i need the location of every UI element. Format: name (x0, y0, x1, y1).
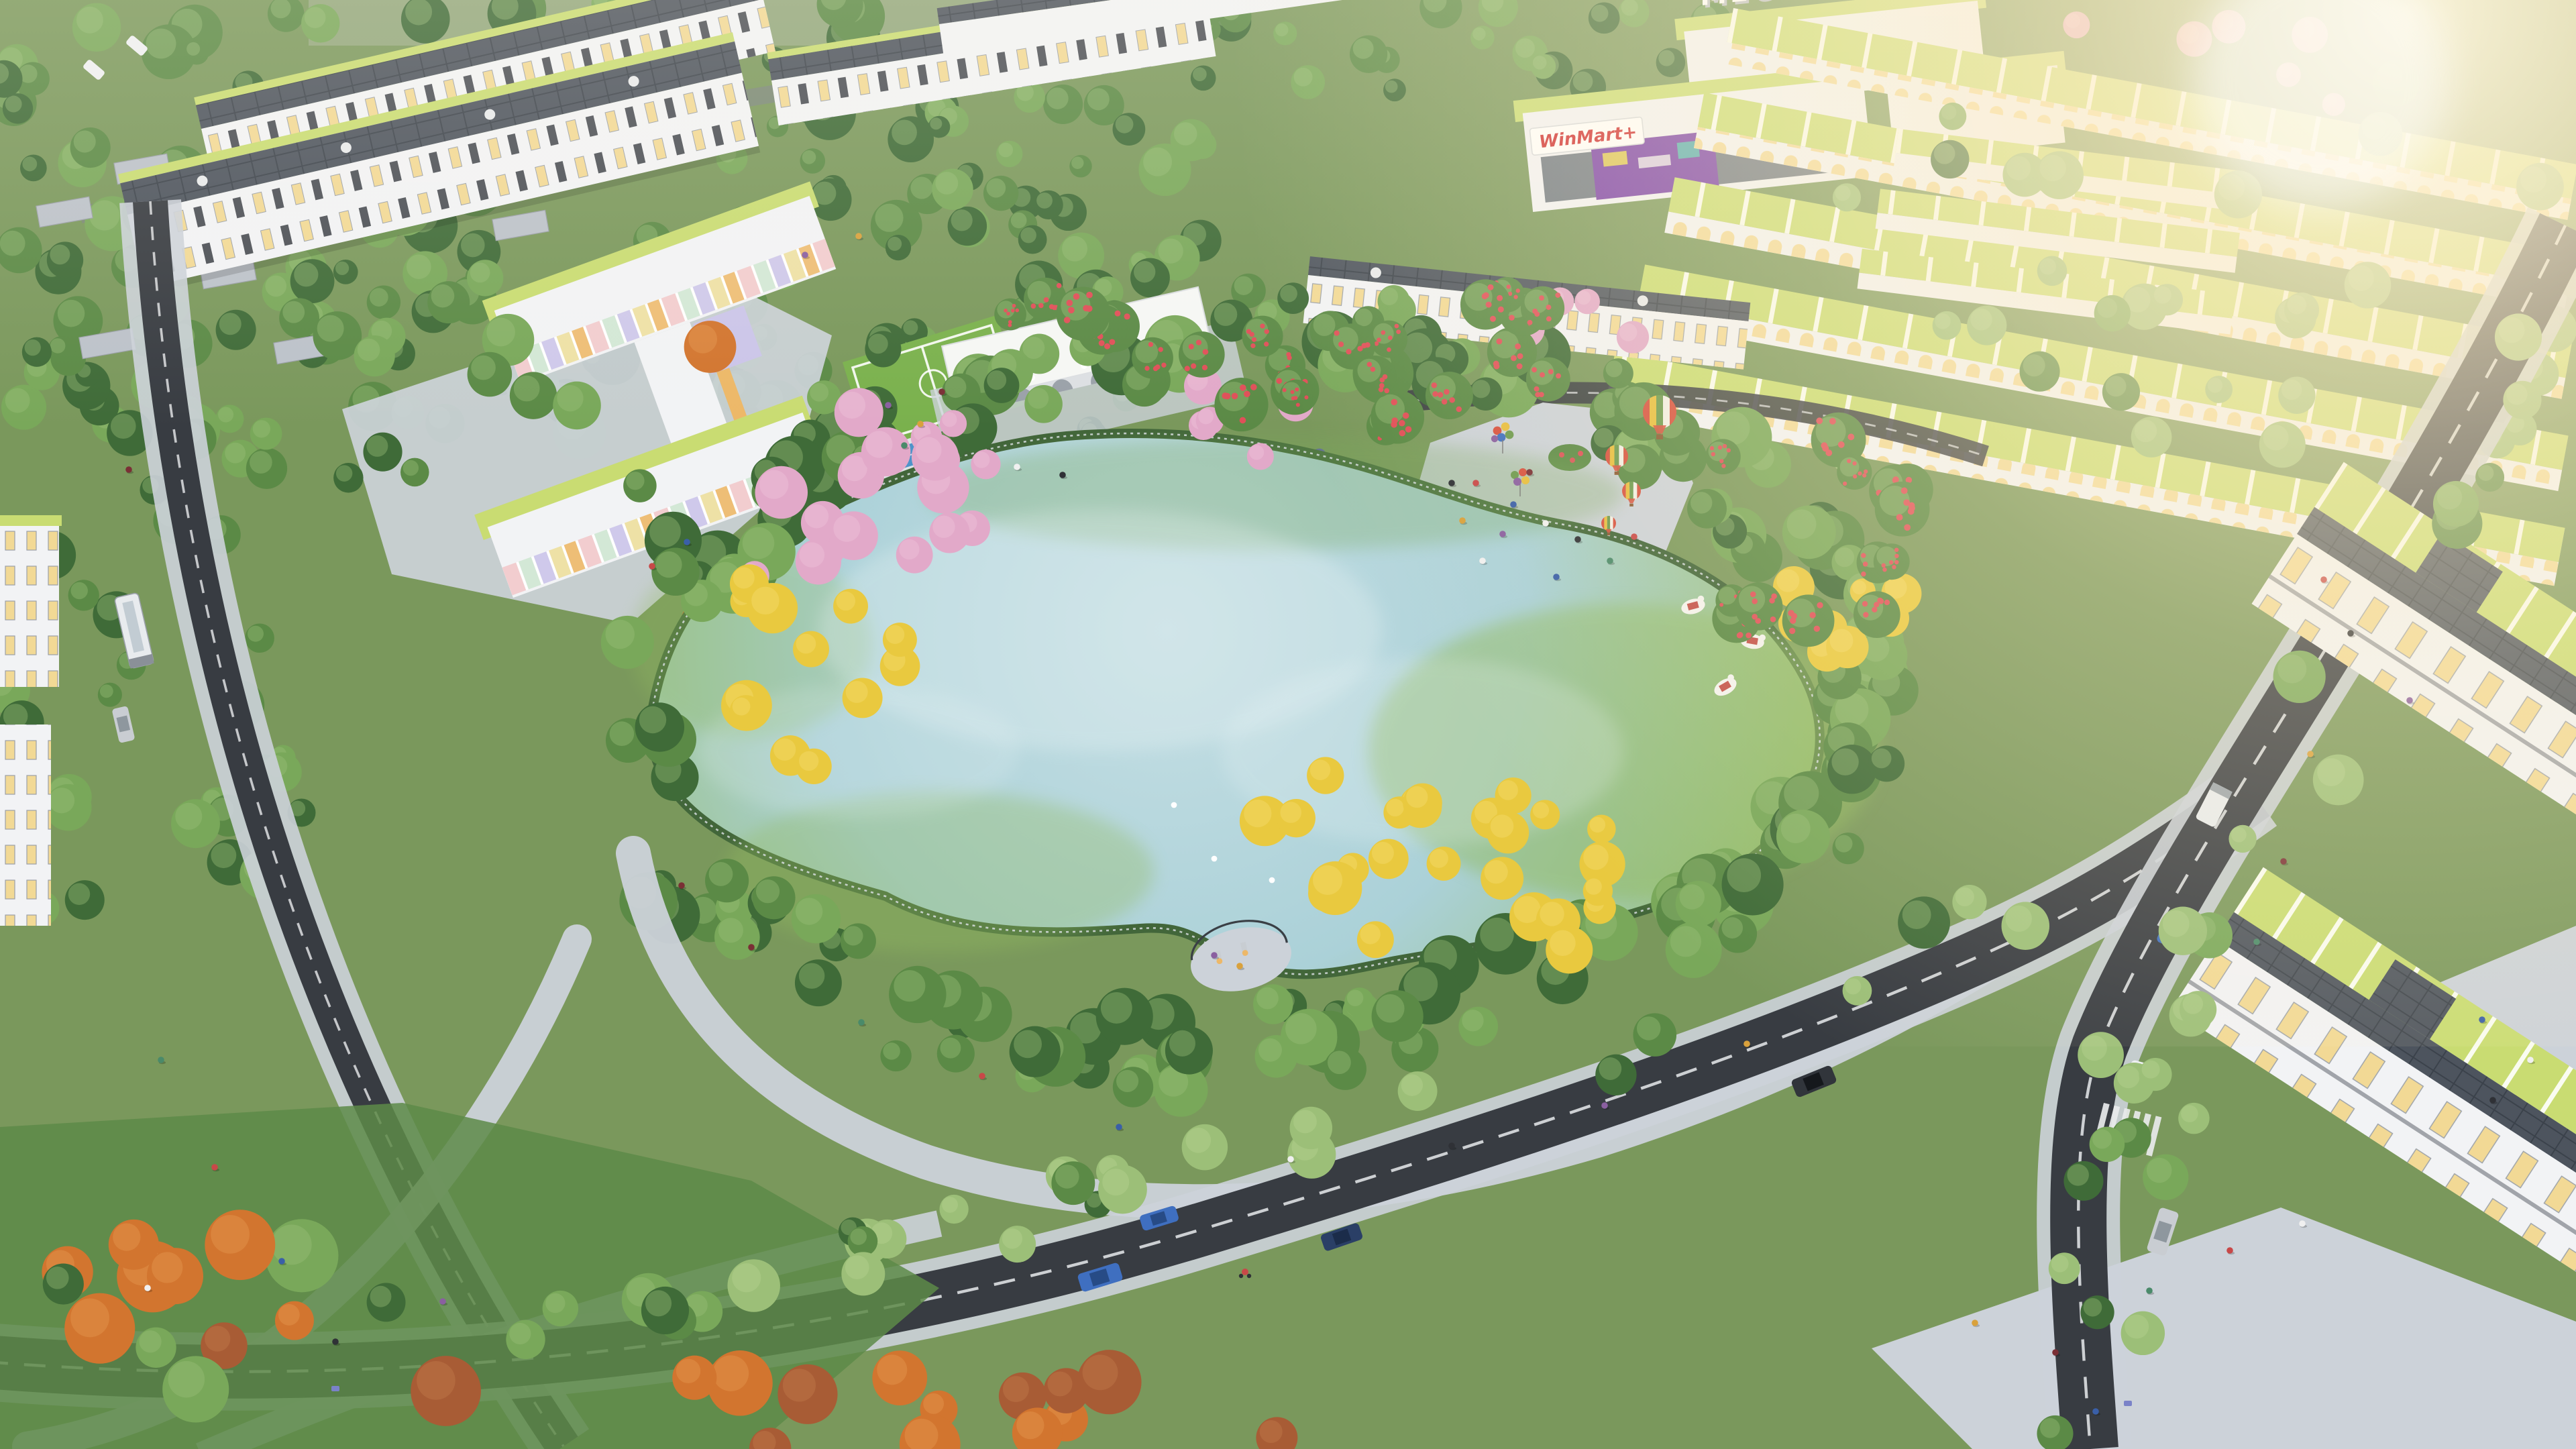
tree-g (162, 1356, 229, 1422)
tree-g (841, 923, 876, 959)
tree-o (275, 1301, 314, 1340)
tree-o (147, 1248, 203, 1304)
tree-g (265, 1219, 338, 1292)
tree-g (65, 880, 105, 920)
tree-r (411, 1356, 481, 1426)
tree-pale (727, 1259, 780, 1311)
tree-y (793, 631, 829, 667)
tree-g (98, 683, 122, 707)
tree-g (543, 1291, 578, 1326)
tree-g (714, 914, 760, 960)
tree-g (171, 799, 220, 848)
aerial-scene: WinMart+ MEGAMALL MEGAMALL (0, 0, 2576, 1449)
tree-g (889, 966, 946, 1023)
tree-g (641, 1287, 689, 1334)
tree-p (796, 539, 841, 584)
tree-g (68, 580, 99, 610)
tree-g (1096, 988, 1153, 1045)
tree-g (623, 469, 657, 502)
tree-g (245, 623, 274, 653)
tree-p (929, 513, 970, 553)
tree-g (2063, 1161, 2103, 1201)
tree-g (792, 894, 841, 943)
tree-y (843, 678, 883, 718)
tree-y (833, 589, 868, 624)
tree-g (367, 1283, 406, 1322)
tree-pale (2121, 1311, 2165, 1355)
tree-g (1595, 1055, 1636, 1095)
tree-g (136, 1328, 176, 1368)
tree-pale (2049, 1252, 2080, 1284)
tree-g (601, 616, 654, 669)
tree-g (880, 1040, 911, 1071)
tree-g (363, 433, 402, 472)
tree-o (64, 1293, 135, 1364)
tree-g (937, 1035, 975, 1073)
tree-y (883, 623, 917, 657)
tree-g (1113, 1067, 1153, 1107)
tree-o (205, 1210, 275, 1280)
tree-g (2143, 1155, 2188, 1200)
tree-y (730, 695, 763, 728)
tree-pale (2178, 1103, 2209, 1134)
tree-pale (1398, 1071, 1438, 1111)
tree-y (747, 583, 798, 633)
tree-p (755, 466, 808, 519)
tree-g (43, 1263, 84, 1304)
tree-g (400, 458, 429, 487)
stroller (331, 1386, 339, 1391)
aerial-render-image: WinMart+ MEGAMALL MEGAMALL (0, 0, 2576, 1449)
tree-p (861, 427, 910, 476)
tree-pale (939, 1195, 968, 1224)
tree-g (333, 463, 363, 492)
tree-g (848, 1226, 878, 1256)
tree-g (1324, 1048, 1366, 1090)
tree-g (2080, 1295, 2114, 1329)
tree-g (1010, 1026, 1061, 1077)
tree-g (651, 548, 699, 596)
tree-o (707, 1350, 772, 1415)
tree-pale (1098, 1165, 1147, 1214)
tree-pale (1182, 1124, 1228, 1170)
tree-pale (2139, 1058, 2171, 1091)
tree-g (506, 1320, 545, 1359)
tree-p (912, 433, 959, 480)
tree-r (777, 1364, 837, 1424)
tree-o (672, 1356, 716, 1400)
tree-pale (999, 1226, 1036, 1263)
stroller (2124, 1401, 2132, 1406)
tree-g (246, 448, 287, 489)
tree-g (752, 876, 795, 919)
tree-g (1051, 1161, 1095, 1205)
tree-g (795, 959, 842, 1006)
tree-pale (1290, 1107, 1332, 1149)
tree-g (45, 784, 92, 831)
tree-y (796, 749, 831, 784)
tree-g (635, 702, 684, 751)
tree-g (2090, 1127, 2125, 1163)
tree-p (971, 449, 1000, 479)
tree-pale (841, 1252, 885, 1295)
tree-p (896, 537, 933, 574)
tree-r (1077, 1350, 1141, 1414)
tree-g (705, 859, 749, 902)
tree-o (872, 1350, 927, 1405)
